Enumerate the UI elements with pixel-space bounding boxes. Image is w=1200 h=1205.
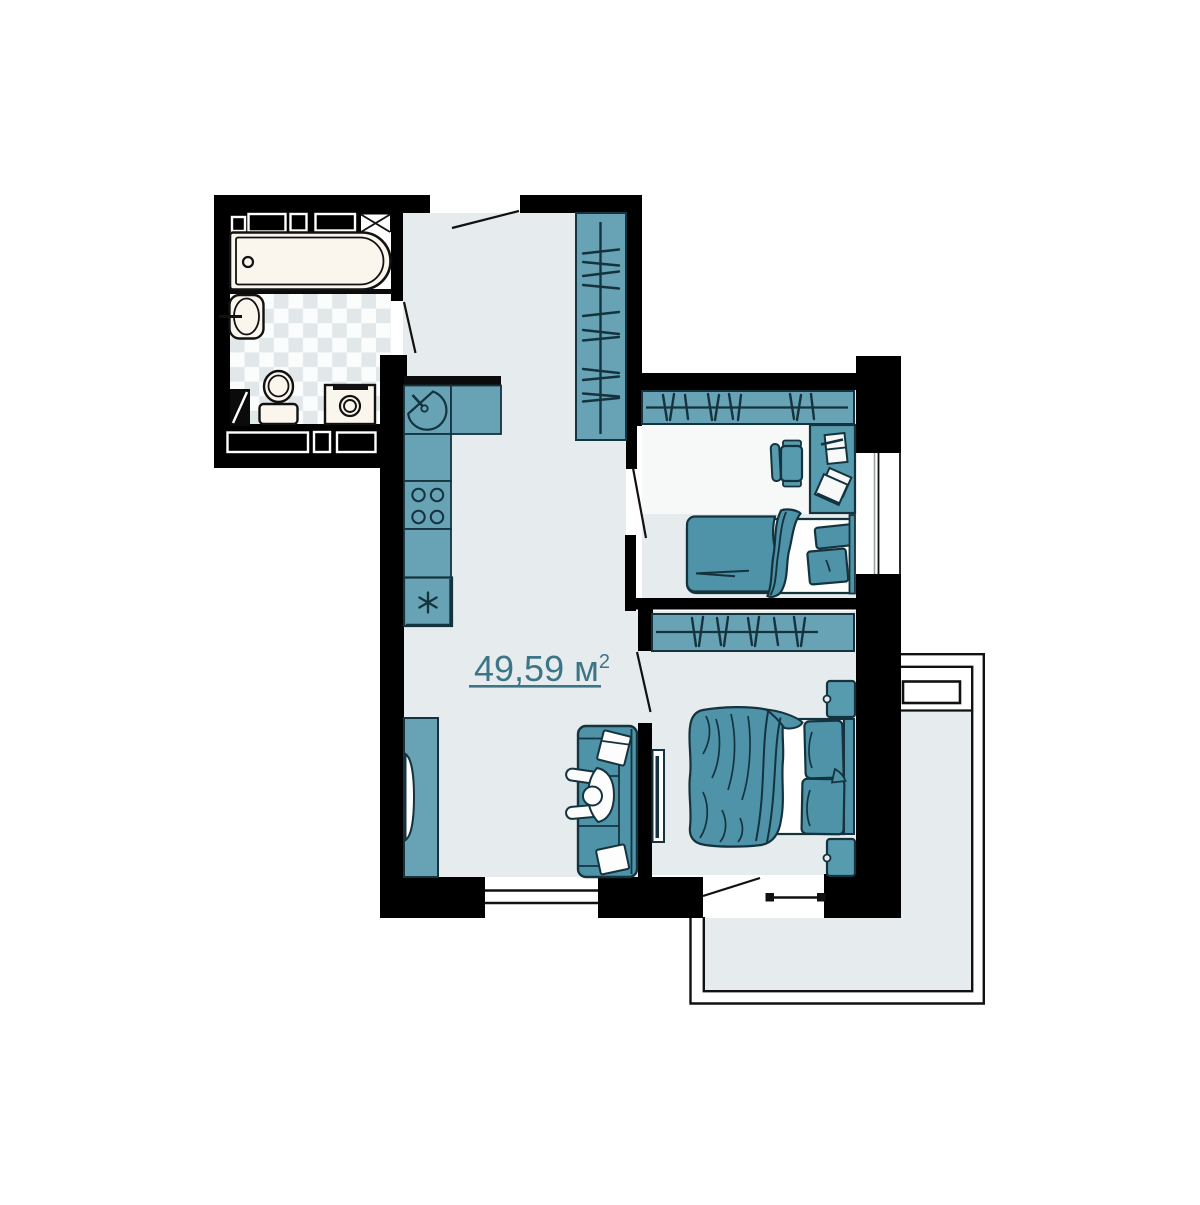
svg-text:49,59 м2: 49,59 м2 xyxy=(474,648,610,689)
